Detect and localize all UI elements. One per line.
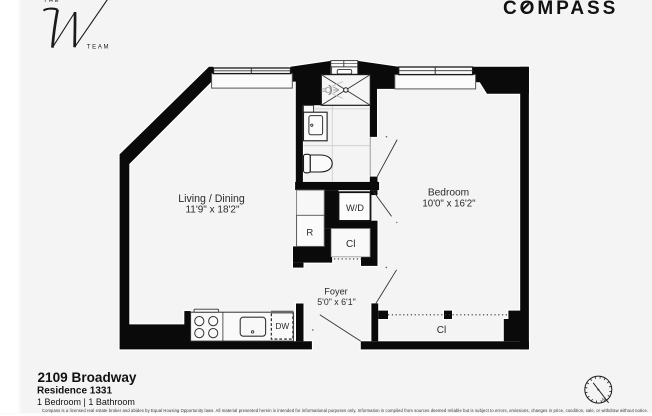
svg-text:1 Bedroom | 1 Bathroom: 1 Bedroom | 1 Bathroom bbox=[37, 397, 135, 407]
svg-text:THE: THE bbox=[44, 0, 61, 4]
svg-text:11'9" x 18'2": 11'9" x 18'2" bbox=[185, 205, 240, 216]
svg-text:TEAM: TEAM bbox=[87, 44, 110, 50]
svg-text:Cl: Cl bbox=[346, 239, 355, 250]
svg-text:5'0" x 6'1": 5'0" x 6'1" bbox=[317, 297, 355, 307]
svg-text:Foyer: Foyer bbox=[324, 286, 348, 296]
svg-text:Bedroom: Bedroom bbox=[428, 188, 469, 199]
svg-text:Cl: Cl bbox=[437, 325, 446, 336]
svg-text:N: N bbox=[602, 397, 605, 402]
svg-text:W/D: W/D bbox=[346, 203, 364, 213]
svg-text:2109 Broadway: 2109 Broadway bbox=[38, 370, 137, 385]
svg-text:DW: DW bbox=[275, 321, 289, 331]
svg-text:R: R bbox=[306, 228, 313, 239]
svg-text:10'0" x 16'2": 10'0" x 16'2" bbox=[422, 199, 476, 210]
svg-text:Living / Dining: Living / Dining bbox=[178, 193, 245, 205]
svg-text:Residence 1331: Residence 1331 bbox=[37, 386, 112, 397]
svg-text:COMPASS: COMPASS bbox=[503, 0, 618, 19]
svg-text:Compass is a licensed real est: Compass is a licensed real estate broker… bbox=[42, 408, 648, 413]
